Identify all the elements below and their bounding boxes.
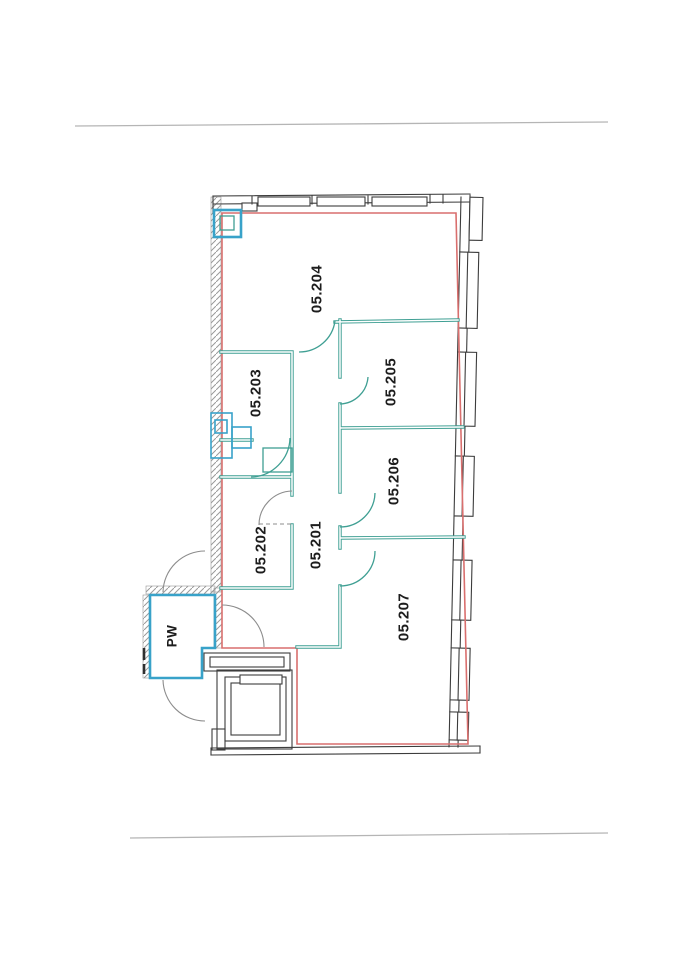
scanned-page: 05.204 05.203 05.205 05.206 05.202 05.20… bbox=[0, 0, 679, 960]
pw-lower-door-arc bbox=[163, 680, 205, 721]
window-bay bbox=[466, 252, 479, 328]
pw-room-outline bbox=[150, 595, 215, 678]
wall-pier bbox=[242, 203, 257, 211]
elevator-door bbox=[240, 675, 282, 684]
room-label-05-203: 05.203 bbox=[248, 369, 265, 417]
window-bay bbox=[460, 560, 472, 620]
window-bay bbox=[464, 352, 477, 426]
door-arc-room-206 bbox=[340, 493, 375, 527]
door-arc-room-205 bbox=[340, 377, 368, 404]
room-label-05-202: 05.202 bbox=[253, 526, 270, 574]
bottom-wall bbox=[211, 746, 480, 755]
door-arc-room-207 bbox=[340, 551, 375, 586]
page-rule-bottom bbox=[130, 833, 608, 838]
door-arc-room-203 bbox=[251, 438, 290, 477]
room-label-05-206: 05.206 bbox=[386, 457, 403, 505]
page-rule-top bbox=[75, 122, 608, 126]
entrance-door-arc bbox=[222, 605, 264, 647]
top-facade-wall bbox=[213, 194, 470, 213]
window-bay bbox=[317, 197, 365, 206]
room-label-pw: PW bbox=[165, 625, 180, 648]
room-label-05-207: 05.207 bbox=[396, 593, 413, 641]
door-arc-room-202 bbox=[259, 491, 292, 525]
floor-plan-figure: 05.204 05.203 05.205 05.206 05.202 05.20… bbox=[0, 0, 679, 960]
window-bay bbox=[258, 197, 310, 206]
room-label-05-204: 05.204 bbox=[309, 265, 326, 314]
wall-riser-box bbox=[232, 427, 251, 448]
window-bay bbox=[372, 197, 427, 206]
door-arc-room-204 bbox=[299, 321, 335, 352]
window-bay bbox=[462, 456, 474, 516]
room-label-05-201: 05.201 bbox=[308, 521, 325, 569]
elevator-shaft bbox=[204, 653, 292, 750]
window-bay bbox=[458, 648, 470, 700]
wall-pier bbox=[469, 197, 483, 240]
room-label-05-205: 05.205 bbox=[383, 358, 400, 406]
wall-hatching bbox=[143, 197, 222, 678]
door-swing-arcs bbox=[163, 321, 375, 721]
